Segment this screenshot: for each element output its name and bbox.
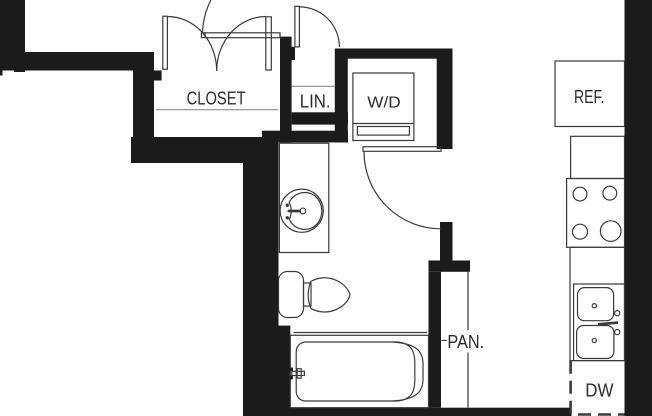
- svg-text:PAN.: PAN.: [447, 332, 484, 352]
- svg-text:DW: DW: [585, 380, 613, 400]
- svg-text:LIN.: LIN.: [300, 91, 331, 111]
- svg-text:REF.: REF.: [574, 87, 604, 107]
- svg-text:CLOSET: CLOSET: [187, 89, 246, 109]
- svg-text:W/D: W/D: [367, 95, 400, 112]
